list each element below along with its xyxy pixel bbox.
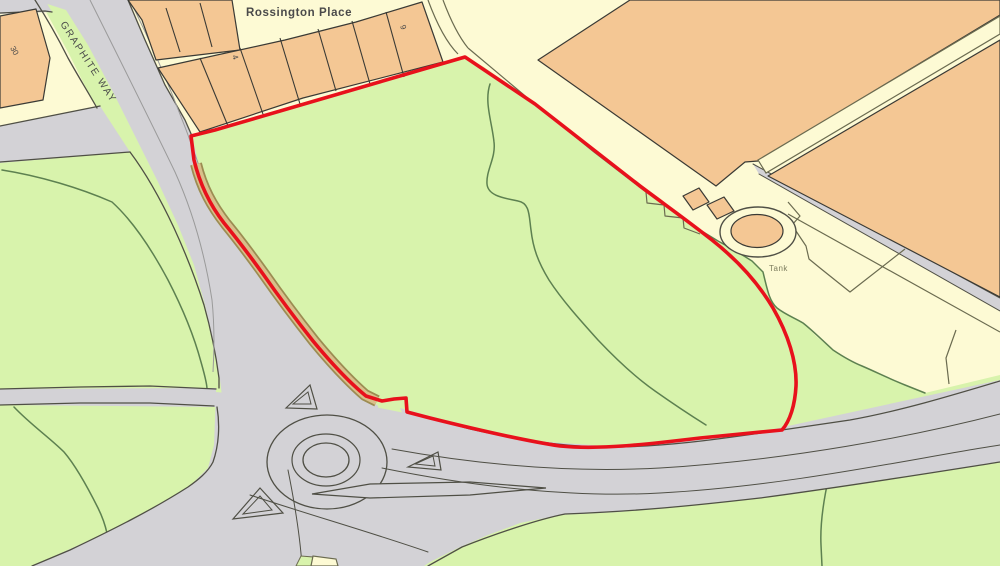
map-canvas: Rossington Place GRAPHITE WAY 30 4 9 Tan… [0, 0, 1000, 566]
roundabout-central-island [292, 434, 360, 486]
label-tank: Tank [769, 264, 788, 273]
label-rossington-place: Rossington Place [246, 7, 352, 19]
site-location-map: Rossington Place GRAPHITE WAY 30 4 9 Tan… [0, 0, 1000, 566]
tank-inner [731, 215, 783, 248]
